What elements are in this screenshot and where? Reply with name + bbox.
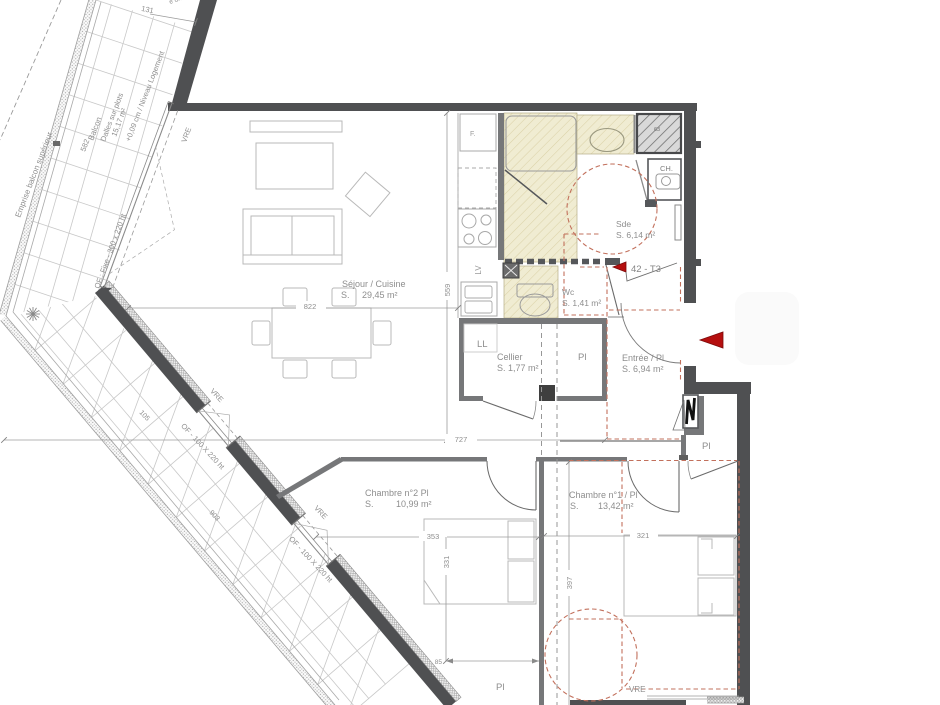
svg-text:Wc: Wc	[562, 287, 575, 297]
svg-text:13,42 m²: 13,42 m²	[598, 501, 634, 511]
svg-text:S. 6,94 m²: S. 6,94 m²	[622, 364, 664, 374]
svg-text:S.: S.	[341, 290, 350, 300]
svg-text:Pl: Pl	[702, 441, 710, 452]
svg-text:Chambre n°2 Pl: Chambre n°2 Pl	[365, 488, 429, 498]
svg-text:10,99 m²: 10,99 m²	[396, 499, 432, 509]
svg-text:F.: F.	[470, 131, 476, 138]
svg-text:85: 85	[435, 659, 443, 666]
svg-text:331: 331	[442, 556, 451, 569]
svg-text:321: 321	[637, 531, 650, 540]
svg-text:CH.: CH.	[660, 164, 673, 173]
svg-text:LL: LL	[477, 339, 488, 350]
svg-text:42 - T3: 42 - T3	[631, 264, 661, 275]
svg-text:Cellier: Cellier	[497, 352, 523, 362]
svg-text:LV: LV	[474, 265, 483, 275]
svg-text:559: 559	[443, 284, 452, 297]
svg-text:S. 1,41 m²: S. 1,41 m²	[562, 298, 601, 308]
svg-text:Pl: Pl	[496, 682, 504, 693]
svg-text:S.: S.	[365, 499, 374, 509]
svg-text:S.: S.	[570, 501, 579, 511]
svg-text:Séjour / Cuisine: Séjour / Cuisine	[342, 279, 406, 289]
svg-text:S. 6,14 m²: S. 6,14 m²	[616, 230, 655, 240]
svg-text:397: 397	[565, 577, 574, 590]
svg-text:63: 63	[654, 127, 660, 133]
svg-text:Sde: Sde	[616, 219, 631, 229]
svg-text:822: 822	[304, 302, 317, 311]
svg-text:Chambre n°1 / Pl: Chambre n°1 / Pl	[569, 490, 638, 500]
svg-text:Entrée / Pl: Entrée / Pl	[622, 353, 664, 363]
svg-text:S. 1,77 m²: S. 1,77 m²	[497, 363, 539, 373]
svg-text:VRE: VRE	[629, 685, 645, 694]
svg-text:Pl: Pl	[578, 352, 586, 363]
svg-text:353: 353	[427, 532, 440, 541]
svg-text:29,45 m²: 29,45 m²	[362, 290, 398, 300]
svg-text:727: 727	[455, 435, 468, 444]
